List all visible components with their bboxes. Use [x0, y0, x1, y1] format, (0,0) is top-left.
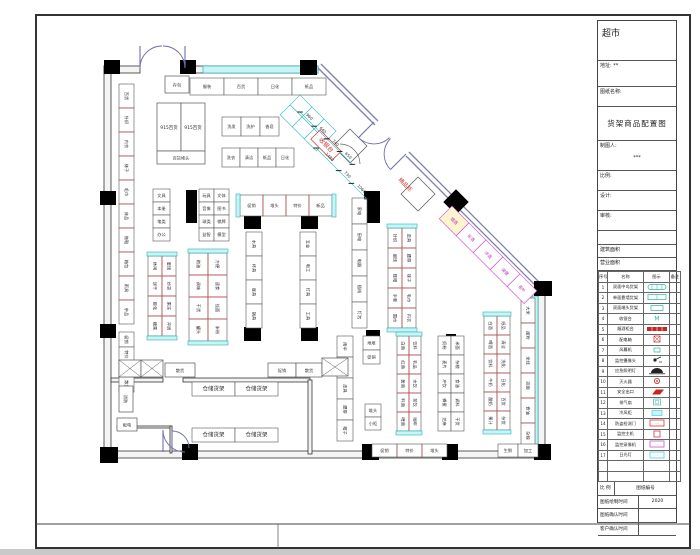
fixture-label: 散货: [305, 367, 313, 374]
shelf-label: 冲调: [166, 322, 173, 330]
legend-symbol-icon: ···: [644, 440, 670, 451]
title-block-row: [598, 231, 676, 245]
shelf-label: 五金: [306, 240, 312, 249]
legend-symbol-icon: ···: [644, 450, 670, 461]
legend-note: [670, 293, 681, 304]
title-block-row: 比例:: [598, 171, 676, 191]
legend-symbol-icon: [644, 356, 670, 367]
shelf-label: 纸品: [263, 154, 271, 161]
legend-note: [670, 314, 681, 325]
shelf-label: 洗衣: [227, 154, 236, 161]
shelf-label: 干货: [195, 304, 202, 312]
wall: [183, 378, 310, 382]
title-block-row: 设计:: [598, 191, 676, 211]
storefront-diagonal-wall: [318, 68, 375, 125]
title-block-row: 审核:: [598, 211, 676, 231]
legend-no: 5: [599, 324, 608, 335]
structural-column: [301, 215, 318, 229]
door-leaf: [391, 154, 407, 170]
gondola-run: 大米面粉米线挂面食油杂粮: [521, 298, 535, 448]
legend-name: 应急照明灯: [608, 366, 644, 377]
footer-value: [638, 509, 676, 522]
shelf-label: 电工: [306, 264, 312, 272]
shelf-label: 日化: [281, 154, 290, 161]
shelf-label: 促销: [123, 335, 130, 343]
legend-row: 3双面端头货架: [599, 303, 681, 314]
shelf-label: 服装: [203, 83, 212, 90]
shelf-label: 毛巾: [123, 188, 130, 196]
legend-row: 14防盗检测门···: [599, 419, 681, 430]
fixture-box: 存包: [165, 76, 189, 93]
shelf-label: 黄酒: [400, 379, 407, 387]
legend-symbol-icon: [644, 366, 670, 377]
legend-row: 13冷风柜: [599, 408, 681, 419]
shelf-label: 清洁: [500, 340, 507, 348]
legend-no: 6: [599, 335, 608, 346]
wall: [538, 292, 545, 458]
title-block-row: 建筑面积: [598, 245, 676, 258]
gondola-run: 服装百货日化纸品: [190, 78, 326, 95]
shelf-label: 围巾: [392, 314, 399, 322]
shelf-label: 拖鞋: [123, 236, 130, 245]
svg-text:···: ···: [655, 422, 658, 426]
shelf-label: 图书: [217, 205, 225, 212]
shelf-label: 糖果: [152, 322, 159, 331]
shelf-label: 堆头: [430, 447, 438, 454]
structural-column: [100, 447, 118, 463]
shelf-label: 促销: [247, 202, 255, 209]
floor-plan: 服装百货日化纸品洗发洗护香皂洗衣清洁纸品日化百货针织内衣袜子毛巾床品拖鞋箱包雨具…: [0, 0, 700, 549]
shelf-label: 杂粮: [525, 431, 532, 440]
legend-note: [670, 324, 681, 335]
shelf-label: 生鲜: [504, 447, 513, 454]
shelf-label: 针织: [123, 116, 130, 124]
shelf-label: 杯具: [251, 264, 258, 273]
shelf-label: 办公: [157, 231, 166, 238]
legend-row: [599, 471, 681, 482]
legend-note: [670, 471, 681, 482]
legend-no: 2: [599, 293, 608, 304]
address-label: 地址:: [600, 63, 612, 69]
shelf-label: 啤酒: [487, 340, 494, 348]
shelf-label: 白酒: [400, 341, 407, 349]
legend-symbol-icon: [644, 429, 670, 440]
shelf-label: 日化: [271, 83, 280, 90]
gondola-run: 烟酒名酒洋酒保健茶叶: [439, 206, 537, 304]
shelf-label: 纸品: [305, 83, 313, 90]
shelf-label: 饮料: [412, 341, 419, 350]
legend-header: 备注: [670, 272, 681, 283]
gondola-run: 仓储货架仓储货架: [192, 428, 278, 442]
door-swing-arc: [384, 139, 390, 170]
legend-symbol-icon: [644, 461, 670, 472]
legend-symbol-icon: [644, 345, 670, 356]
shelf-label: 香皂: [265, 123, 273, 130]
shelf-label: 水饮: [412, 379, 419, 388]
title-block-footer-row: 图纸绘制时间2020: [598, 496, 676, 510]
legend-no: 16: [599, 440, 608, 451]
legend-name: 收银台: [608, 314, 644, 325]
shelf-label: 餐具: [251, 288, 258, 297]
structural-column: [180, 60, 196, 74]
footer-label: 图纸绘制时间: [598, 499, 638, 505]
door-leaf: [359, 122, 375, 138]
legend-note: [670, 450, 681, 461]
legend-row: 12排气扇: [599, 398, 681, 409]
shelf-label: 仓储货架: [245, 431, 268, 439]
shelf-label: 笔类: [157, 218, 166, 225]
legend-row: 11安全出口: [599, 387, 681, 398]
shelf-label: 白酒: [487, 321, 494, 329]
shelf-label: 麦片: [441, 360, 448, 368]
shelf-label: 冲饮: [441, 379, 448, 388]
shelf-label: 方便: [214, 260, 221, 269]
legend-note: [670, 429, 681, 440]
legend-row: 4收银台M: [599, 314, 681, 325]
shelf-label: 水具: [251, 240, 258, 249]
legend-symbol-icon: [644, 471, 670, 482]
door-swing-arc: [140, 46, 162, 68]
legend-name: 排气扇: [608, 398, 644, 409]
legend-symbol-icon: [644, 335, 670, 346]
shelf-label: 米粉: [214, 326, 221, 335]
legend-no: 4: [599, 314, 608, 325]
gondola-run: 洗衣清洁纸品日化: [222, 148, 294, 167]
fixture-label: 消防: [122, 395, 129, 403]
legend-note: [670, 282, 681, 293]
fixture-label: 百货堆头: [173, 154, 190, 161]
shelf-label: 蜂蜜: [441, 398, 448, 406]
gondola-run: 玩具文体音像图书球类棋牌益智模型: [199, 189, 229, 241]
shelf-label: 果冻: [166, 302, 173, 310]
legend-name: 配电箱: [608, 335, 644, 346]
legend-name: 防盗检测门: [608, 419, 644, 430]
legend-name: [608, 471, 644, 482]
legend-no: 9: [599, 366, 608, 377]
shelf-label: 灯具: [305, 288, 312, 297]
legend-table: 序号名称图示备注 1双面中岛货架2单面靠墙货架3双面端头货架4收银台M5烟酒柜台…: [598, 271, 681, 482]
shelf-label: 纸品: [500, 321, 507, 329]
shelf-label: 特价: [293, 202, 302, 208]
shelf-label: 干货: [454, 417, 461, 425]
wall: [104, 66, 111, 458]
fixture-box: 散货: [296, 363, 322, 377]
footer-value: [638, 523, 676, 536]
fixture-label: 存包: [173, 81, 182, 87]
footer-value: 2020: [638, 496, 676, 509]
shelf-label: 速食: [214, 282, 221, 291]
legend-name: 双面端头货架: [608, 303, 644, 314]
shelf-label: 袜子: [123, 164, 130, 172]
shelf-label: 日化: [500, 378, 507, 387]
shelf-label: 挂面: [214, 304, 221, 312]
legend-symbol-icon: [644, 324, 670, 335]
legend-note: [670, 335, 681, 346]
legend-symbol-icon: [644, 303, 670, 314]
shelf-label: 食油: [454, 379, 461, 387]
gondola-run: 五金电工灯具工具: [300, 232, 316, 328]
legend-no: 7: [599, 345, 608, 356]
fixture-label: 配电: [123, 421, 132, 428]
shelf-label: 鞋帽: [392, 274, 399, 282]
shelf-label: 休闲: [152, 262, 159, 270]
storefront-diagonal-wall: [406, 156, 542, 292]
legend-no: 8: [599, 356, 608, 367]
shelf-label: 百货: [123, 92, 130, 100]
shelf-label: 袜子: [406, 274, 413, 282]
shelf-label: 大米: [525, 306, 532, 315]
fixture-box: 915百货: [181, 103, 205, 151]
shelf-label: 球类: [202, 218, 211, 225]
fixture-label: 915百货: [160, 124, 178, 131]
shelf-label: 调味: [195, 282, 202, 291]
legend-note: [670, 366, 681, 377]
title-block-footer-row: 客户确认时间: [598, 523, 676, 537]
shelf-label: 音像: [202, 205, 211, 212]
fixture-label: 915百货: [184, 124, 202, 131]
legend-name: 监控主机: [608, 429, 644, 440]
drafter-label: 制图人:: [600, 143, 617, 149]
title-block-footer-row: 图纸确认时间: [598, 509, 676, 523]
structural-column: [301, 327, 318, 341]
shelf-label: 茶饮: [412, 398, 419, 407]
legend-header: 图示: [644, 272, 670, 283]
fixture-box: 配电: [117, 418, 137, 431]
shelf-label: 果汁: [487, 416, 494, 425]
legend-symbol-icon: [644, 293, 670, 304]
drawing-sheet: 服装百货日化纸品洗发洗护香皂洗衣清洁纸品日化百货针织内衣袜子毛巾床品拖鞋箱包雨具…: [0, 0, 700, 549]
legend-name: 监控摄像头: [608, 356, 644, 367]
address-value: **: [613, 63, 618, 69]
title-block-footer: 比 例图纸编号图纸绘制时间2020图纸确认时间客户确认时间: [598, 482, 676, 536]
shelf-label: 杂货: [500, 416, 507, 424]
shelf-label: 膨化: [152, 302, 159, 311]
shelf-label: 加工: [524, 447, 532, 454]
shelf-label: 蜜饯: [166, 262, 173, 270]
shelf-label: 牛奶: [487, 378, 494, 386]
legend-name: 单面靠墙货架: [608, 293, 644, 304]
legend-symbol-icon: [644, 282, 670, 293]
legend-header: 名称: [608, 272, 644, 283]
shelf-label: 本册: [157, 205, 165, 212]
legend-name: 双面中岛货架: [608, 282, 644, 293]
drafter-cell: 制图人: ***: [598, 141, 676, 171]
wall: [308, 380, 312, 454]
gondola-run: 家电厨电电器插线灯泡: [352, 198, 367, 328]
svg-text:M: M: [654, 316, 659, 323]
title-block: 超市 地址: ** 图纸名称: 货架商品配置图 制图人: *** 比例:设计:审…: [597, 20, 677, 523]
shelf-label: 罐头: [195, 326, 202, 334]
gondola-run: 仓储货架仓储货架: [192, 382, 278, 396]
gondola-run: 促销特价堆头: [372, 444, 447, 457]
shelf-label: 调料: [454, 398, 461, 407]
shelf-label: 奶粉: [441, 341, 448, 350]
gondola-run: 雨伞箱包皮具腰带帽子: [337, 336, 353, 441]
legend-symbol-icon: [644, 398, 670, 409]
shelf-label: 毛巾: [406, 294, 413, 302]
fixture-box: [141, 360, 163, 377]
shelf-label: 堆头: [270, 202, 278, 209]
legend-note: [670, 303, 681, 314]
legend-note: [670, 398, 681, 409]
shelf-label: 插线: [356, 285, 363, 294]
shelf-label: 仓储货架: [245, 385, 268, 393]
legend-row: 17日光灯···: [599, 450, 681, 461]
gondola-run: 白酒啤酒饮料牛奶酸奶果汁纸品清洁洗化日化百货杂货: [483, 312, 511, 434]
legend-symbol-icon: ···: [644, 419, 670, 430]
shelf-label: 堆头: [369, 407, 377, 414]
shelf-label: 咖啡: [412, 417, 419, 426]
shelf-label: 手套: [392, 294, 399, 303]
legend-name: 风幕机: [608, 345, 644, 356]
legend-row: 1双面中岛货架: [599, 282, 681, 293]
footer-label: 图纸确认时间: [598, 512, 638, 518]
gondola-run: 堆头小柜: [365, 404, 381, 430]
legend-row: 15监控主机: [599, 429, 681, 440]
structural-column: [100, 191, 116, 205]
shelf-label: 米线: [525, 356, 532, 365]
legend-symbol-icon: [644, 377, 670, 388]
legend-note: [670, 408, 681, 419]
shelf-label: 箱包: [123, 260, 130, 269]
legend-note: [670, 377, 681, 388]
drawing-title: 货架商品配置图: [598, 107, 676, 141]
gondola-run: 休闲饼干膨化糖果蜜饯炒货果冻冲调: [147, 252, 177, 340]
shelf-label: 床品: [123, 212, 130, 220]
legend-header-row: 序号名称图示备注: [599, 272, 681, 283]
shelf-label: 洗化: [500, 359, 507, 368]
legend-note: [670, 387, 681, 398]
gondola-run: 地堆促销: [363, 336, 380, 364]
shelf-label: 内衣: [123, 140, 130, 149]
shelf-label: 服饰: [392, 254, 399, 262]
legend-row: 10灭火器: [599, 377, 681, 388]
storefront-diagonal-wall: [321, 64, 378, 121]
shelf-label: 啤酒: [400, 417, 407, 425]
legend-row: [599, 461, 681, 472]
legend-note: [670, 345, 681, 356]
title-block-footer-row: 比 例图纸编号: [598, 482, 676, 496]
sheet-name-label: 图纸名称:: [600, 89, 622, 95]
legend-name: 监控录像机: [608, 440, 644, 451]
gondola-run: 文具本册笔类办公: [153, 189, 170, 241]
drafter-value: ***: [600, 155, 674, 161]
shelf-label: 针织: [392, 234, 399, 242]
structural-column: [104, 60, 120, 74]
shelf-label: 食油: [525, 406, 532, 414]
fixture-box: 散货: [165, 363, 195, 377]
gondola-run: 生鲜加工: [498, 444, 538, 457]
shelf-label: 帽子: [342, 426, 349, 434]
shelf-label: 料酒: [400, 398, 407, 406]
legend-name: 灭火器: [608, 377, 644, 388]
gondola-run: 针织服饰鞋帽手套围巾皮具腰带袜子毛巾内衣: [387, 224, 417, 332]
fixture-box: 915百货: [157, 103, 181, 151]
legend-name: 安全出口: [608, 387, 644, 398]
legend-no: 13: [599, 408, 608, 419]
shelf-label: 小柜: [369, 420, 377, 427]
fixture-box: 消防: [119, 386, 133, 412]
shelf-label: 促销: [380, 447, 388, 454]
shelf-label: 雨伞: [342, 342, 349, 351]
footer-label: 比 例: [598, 485, 614, 491]
legend-name: 冷风柜: [608, 408, 644, 419]
gondola-run: 百货针织内衣袜子毛巾床品拖鞋箱包雨具杂品: [119, 84, 134, 324]
legend-no: [599, 471, 608, 482]
shelf-label: 百货: [237, 83, 245, 90]
shelf-label: 米面: [454, 341, 461, 349]
store-name: 超市: [598, 21, 676, 61]
gondola-run: 白酒红酒黄酒料酒啤酒饮料乳品水饮茶饮咖啡: [396, 332, 422, 435]
legend-row: 6配电箱: [599, 335, 681, 346]
legend-row: 2单面靠墙货架: [599, 293, 681, 304]
shelf-label: 灯泡: [356, 311, 363, 320]
shelf-label: 洗发: [227, 123, 236, 130]
shelf-label: 促销: [367, 354, 375, 361]
door-swing-arc: [163, 430, 185, 452]
shelf-label: 厨电: [357, 233, 363, 242]
gondola-run: 奶粉麦片冲饮蜂蜜芝麻米面杂粮食油调料干货: [438, 336, 464, 431]
shelf-label: 杂粮: [454, 360, 461, 369]
shelf-label: 仓储货架: [202, 385, 225, 393]
legend-no: 15: [599, 429, 608, 440]
legend-no: 3: [599, 303, 608, 314]
shelf-label: 乳品: [412, 360, 419, 368]
shelf-label: 电器: [356, 259, 363, 268]
title-block-rows: 比例:设计:审核:建筑面积营业面积: [598, 171, 676, 271]
svg-text:···: ···: [655, 443, 658, 447]
legend-name: 日光灯: [608, 450, 644, 461]
footer-value: 图纸编号: [614, 482, 676, 495]
shelf-label: 饮料: [487, 359, 494, 368]
fixture-box: [322, 358, 348, 376]
legend-row: 8监控摄像头: [599, 356, 681, 367]
shelf-label: 面粉: [525, 331, 532, 340]
gondola-run: 水具杯具餐具锅具: [246, 232, 262, 328]
legend-row: 9应急照明灯: [599, 366, 681, 377]
shelf-label: 百货: [500, 397, 507, 405]
shelf-label: 饼干: [152, 282, 159, 290]
fixture-box: 百货堆头: [157, 151, 205, 164]
gondola-run: 洗发洗护香皂: [222, 117, 279, 136]
shelf-label: 酸奶: [487, 397, 494, 405]
shelf-label: 特价: [405, 447, 414, 453]
gondola-run: 粮油调味干货罐头方便速食挂面米粉: [188, 249, 228, 345]
storefront-diagonal-wall: [409, 152, 545, 288]
legend-note: [670, 440, 681, 451]
structural-column: [300, 60, 317, 75]
legend-no: 12: [599, 398, 608, 409]
shelf-label: 挂面: [525, 381, 532, 389]
legend-symbol-icon: M: [644, 314, 670, 325]
shelf-label: 红酒: [400, 360, 407, 368]
legend-symbol-icon: [644, 387, 670, 398]
address-cell: 地址: **: [598, 61, 676, 87]
shelf-label: 炒货: [166, 282, 173, 290]
title-block-row: 营业面积: [598, 258, 676, 271]
svg-text:···: ···: [655, 454, 658, 458]
shelf-label: 特价: [124, 350, 130, 359]
shelf-label: 内衣: [406, 314, 413, 323]
legend-no: 11: [599, 387, 608, 398]
shelf-label: 芝麻: [441, 417, 448, 426]
footer-label: 客户确认时间: [598, 526, 638, 532]
legend-row: 7风幕机: [599, 345, 681, 356]
legend-no: 17: [599, 450, 608, 461]
shelf-label: 文体: [217, 192, 226, 199]
shelf-label: 清洁: [245, 154, 253, 161]
structural-column: [534, 281, 552, 296]
